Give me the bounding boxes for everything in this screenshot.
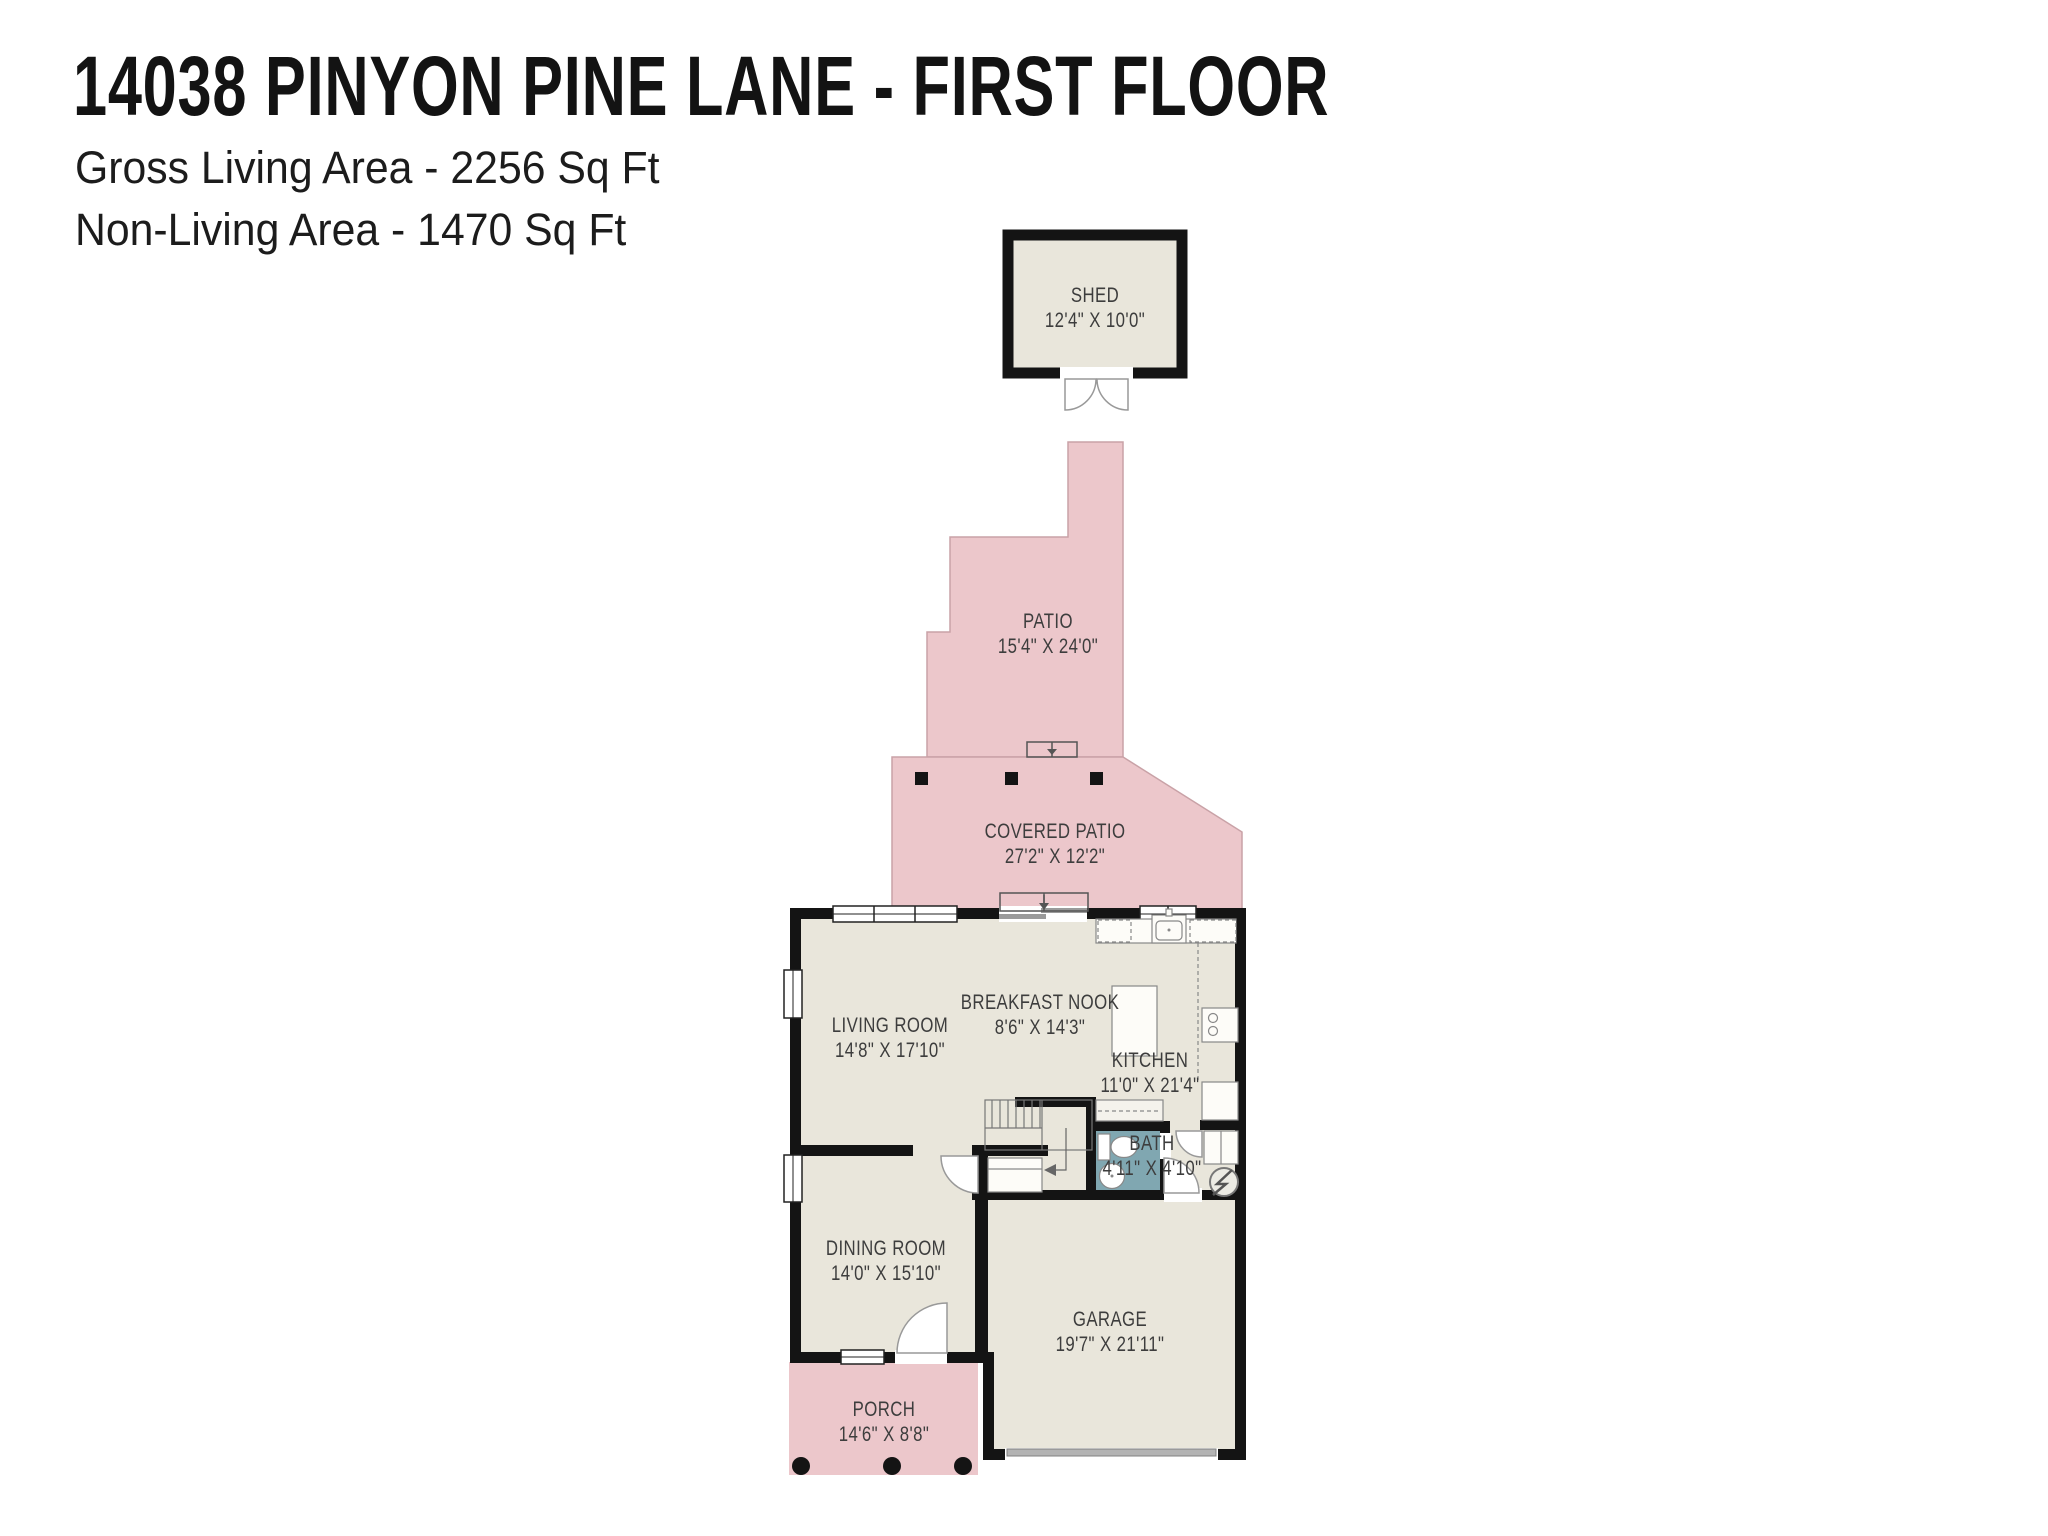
floorplan-page: 14038 PINYON PINE LANE - FIRST FLOOR Gro… xyxy=(0,0,2048,1536)
room-name: SHED xyxy=(1045,283,1145,308)
dishwasher-icon xyxy=(1098,920,1131,942)
room-label-bath: BATH 4'11" X 4'10" xyxy=(1103,1131,1202,1181)
water-heater-icon xyxy=(1210,1168,1238,1196)
room-dims: 15'4" X 24'0" xyxy=(998,634,1098,659)
room-label-garage: GARAGE 19'7" X 21'11" xyxy=(1056,1307,1165,1357)
room-name: KITCHEN xyxy=(1101,1048,1200,1073)
under-stair-closet xyxy=(988,1158,1042,1192)
room-name: LIVING ROOM xyxy=(832,1013,948,1038)
room-dims: 4'11" X 4'10" xyxy=(1103,1156,1202,1181)
room-dims: 19'7" X 21'11" xyxy=(1056,1332,1165,1357)
shed-door-swing xyxy=(1097,379,1128,410)
room-label-shed: SHED 12'4" X 10'0" xyxy=(1045,283,1145,333)
room-dims: 8'6" X 14'3" xyxy=(961,1015,1119,1040)
room-label-patio: PATIO 15'4" X 24'0" xyxy=(998,609,1098,659)
room-dims: 11'0" X 21'4" xyxy=(1101,1073,1200,1098)
floor-plan-drawing xyxy=(0,0,2048,1536)
room-name: DINING ROOM xyxy=(826,1236,946,1261)
room-dims: 12'4" X 10'0" xyxy=(1045,308,1145,333)
room-label-kitchen: KITCHEN 11'0" X 21'4" xyxy=(1101,1048,1200,1098)
room-dims: 14'0" X 15'10" xyxy=(826,1261,946,1286)
room-dims: 14'8" X 17'10" xyxy=(832,1038,948,1063)
room-label-dining-room: DINING ROOM 14'0" X 15'10" xyxy=(826,1236,946,1286)
refrigerator-icon xyxy=(1202,1082,1238,1120)
room-label-covered-patio: COVERED PATIO 27'2" X 12'2" xyxy=(985,819,1126,869)
room-label-living-room: LIVING ROOM 14'8" X 17'10" xyxy=(832,1013,948,1063)
porch-post-icon xyxy=(792,1457,810,1475)
hall-closet xyxy=(1096,1100,1163,1121)
stove-icon xyxy=(1202,1008,1238,1042)
porch-post-icon xyxy=(883,1457,901,1475)
patio-post-icon xyxy=(1005,772,1018,785)
garage-door-icon xyxy=(1007,1449,1216,1456)
shed-door-swing xyxy=(1065,379,1096,410)
patio-shape xyxy=(927,442,1123,757)
room-name: BREAKFAST NOOK xyxy=(961,990,1119,1015)
patio-post-icon xyxy=(1090,772,1103,785)
room-label-porch: PORCH 14'6" X 8'8" xyxy=(839,1397,929,1447)
room-name: COVERED PATIO xyxy=(985,819,1126,844)
room-name: BATH xyxy=(1103,1131,1202,1156)
room-name: GARAGE xyxy=(1056,1307,1165,1332)
room-dims: 14'6" X 8'8" xyxy=(839,1422,929,1447)
room-name: PORCH xyxy=(839,1397,929,1422)
patio-post-icon xyxy=(915,772,928,785)
room-name: PATIO xyxy=(998,609,1098,634)
room-dims: 27'2" X 12'2" xyxy=(985,844,1126,869)
room-label-breakfast-nook: BREAKFAST NOOK 8'6" X 14'3" xyxy=(961,990,1119,1040)
porch-post-icon xyxy=(954,1457,972,1475)
